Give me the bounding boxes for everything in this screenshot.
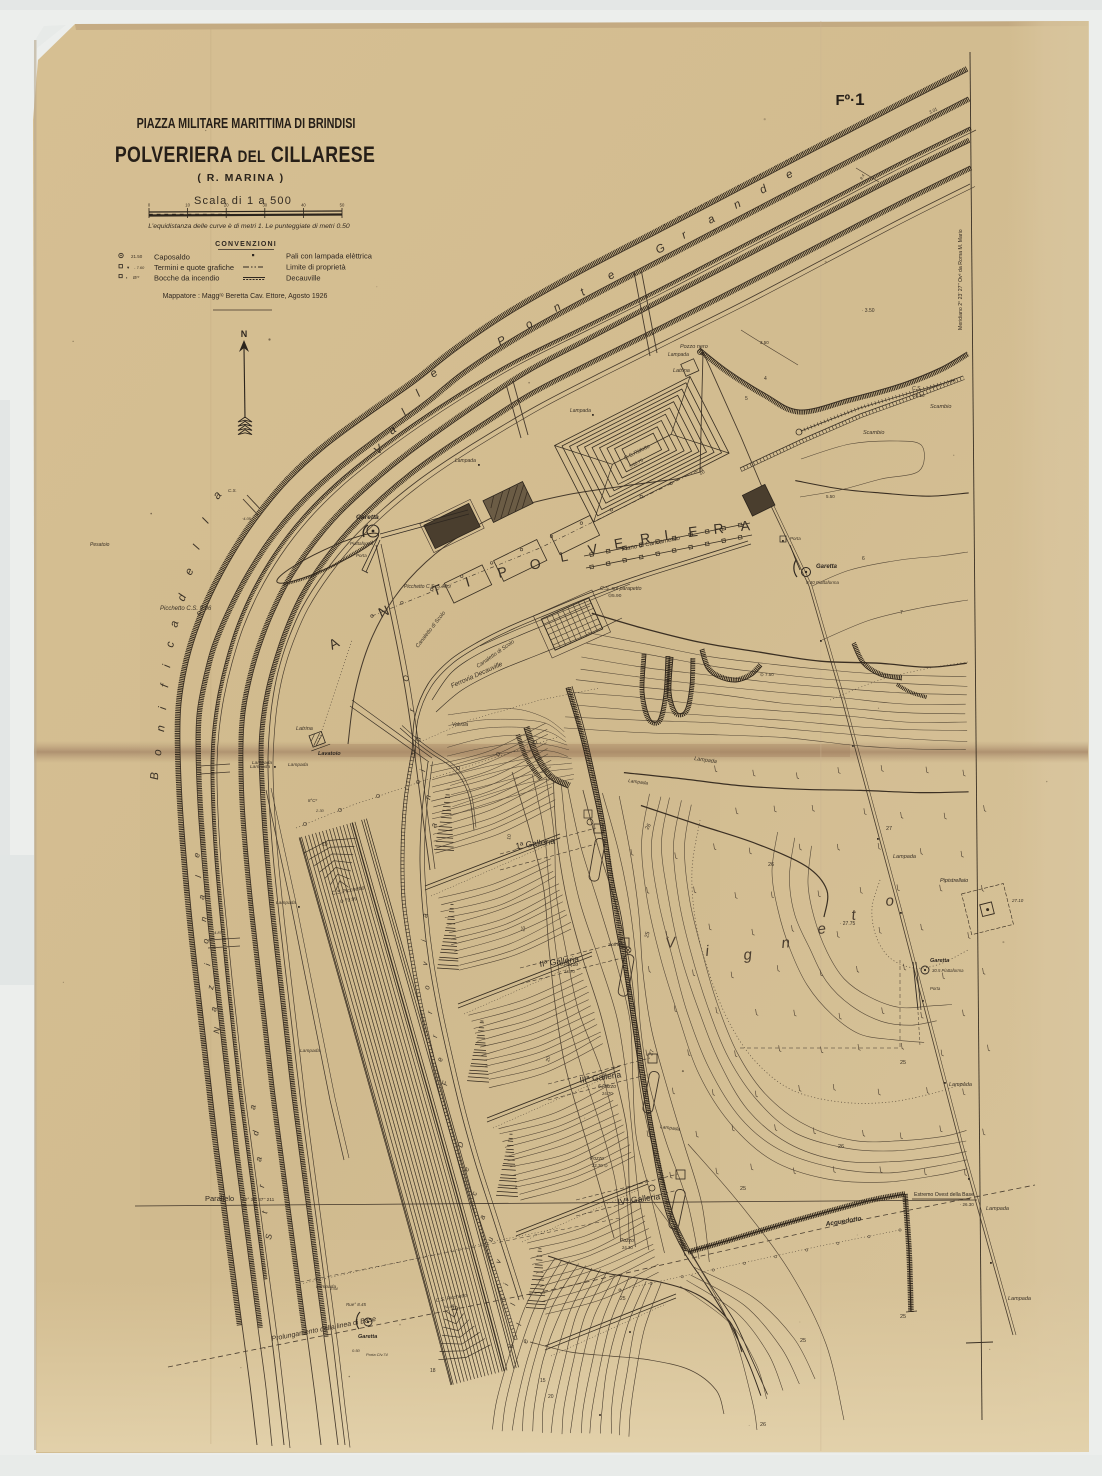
svg-text:( R. MARINA ): ( R. MARINA ) <box>197 172 284 184</box>
svg-text:4: 4 <box>764 376 767 382</box>
svg-text:2.64: 2.64 <box>329 1286 339 1291</box>
svg-text:25: 25 <box>620 1296 626 1302</box>
svg-text:Pozzo: Pozzo <box>620 1238 634 1244</box>
svg-text:Pipistrellaio: Pipistrellaio <box>940 878 968 884</box>
svg-text:24.30: 24.30 <box>622 1245 633 1250</box>
svg-text:15: 15 <box>540 1378 546 1384</box>
svg-text:Estremo Ovest della Base: Estremo Ovest della Base <box>914 1192 974 1198</box>
svg-text:25: 25 <box>900 1060 906 1066</box>
svg-text:20: 20 <box>548 1394 554 1400</box>
svg-text:20: 20 <box>224 203 229 208</box>
svg-text:18: 18 <box>430 1368 436 1374</box>
svg-text:50: 50 <box>340 203 345 208</box>
svg-text:Pozzo: Pozzo <box>590 1156 604 1162</box>
svg-text:Porta: Porta <box>790 536 801 541</box>
svg-text:Piattaforma: Piattaforma <box>350 541 374 546</box>
svg-text:E: E <box>687 523 698 540</box>
svg-text:Bocche da incendio: Bocche da incendio <box>154 274 219 283</box>
svg-text:o: o <box>885 892 895 910</box>
svg-text:POLVERIERA DEL CILLARESE: POLVERIERA DEL CILLARESE <box>115 143 375 167</box>
svg-text:Pozzo nero: Pozzo nero <box>680 344 708 350</box>
svg-text:Mappatore : Maggʳᵉ Beretta Ca: Mappatore : Maggʳᵉ Beretta Cav. Ettore, … <box>163 293 328 300</box>
svg-text:⊙5.90: ⊙5.90 <box>608 593 622 599</box>
svg-text:Porta: Porta <box>356 553 367 558</box>
svg-text:Latrina: Latrina <box>673 368 690 374</box>
svg-text:CONVENZIONI: CONVENZIONI <box>215 241 277 248</box>
svg-text:Garetta: Garetta <box>356 514 379 521</box>
svg-text:Meridiano 2° 23’ 27’’ Ovᵉ da: Meridiano 2° 23’ 27’’ Ovᵉ da Roma M. Mar… <box>958 229 964 330</box>
svg-text:25: 25 <box>900 1314 906 1320</box>
svg-text:Garetta: Garetta <box>930 958 949 964</box>
svg-text:Lavatoio: Lavatoio <box>318 751 341 757</box>
svg-text:10: 10 <box>185 203 190 208</box>
svg-text:B: B <box>149 772 161 780</box>
svg-text:Lampada: Lampada <box>986 1206 1009 1212</box>
svg-text:10: 10 <box>322 842 328 848</box>
svg-text:Garetta: Garetta <box>816 564 838 570</box>
svg-text:C.S.: C.S. <box>912 386 922 392</box>
svg-text:25: 25 <box>740 1186 746 1192</box>
svg-text:Fº·1: Fº·1 <box>835 90 864 109</box>
svg-text:26: 26 <box>768 862 774 868</box>
svg-text:Lampada: Lampada <box>252 760 272 766</box>
svg-text:Bʸᶜ: Bʸᶜ <box>133 275 140 280</box>
svg-text:N: N <box>241 329 248 339</box>
svg-text:Lampada: Lampada <box>1008 1296 1031 1302</box>
svg-text:30.5 Piattaforma: 30.5 Piattaforma <box>932 968 964 973</box>
svg-text:- 7.60: - 7.60 <box>134 265 145 270</box>
svg-text:∙ 26.30: ∙ 26.30 <box>960 1202 974 1207</box>
svg-text:26: 26 <box>760 1422 766 1428</box>
svg-text:5.50: 5.50 <box>826 494 835 499</box>
svg-text:Lampada: Lampada <box>668 352 689 358</box>
svg-text:Scambio: Scambio <box>863 430 884 436</box>
svg-text:5: 5 <box>745 396 748 402</box>
svg-text:Garetta: Garetta <box>358 1334 377 1340</box>
svg-text:27.10: 27.10 <box>1011 898 1024 903</box>
svg-text:Lampada: Lampada <box>276 900 296 906</box>
svg-text:3.50: 3.50 <box>760 340 769 345</box>
svg-text:Pesatoio: Pesatoio <box>90 542 110 548</box>
svg-text:Lampada: Lampada <box>570 408 591 414</box>
svg-text:Sofnetti: Sofnetti <box>608 942 625 948</box>
svg-text:Termini e quote grafiche: Termini e quote grafiche <box>154 263 234 272</box>
svg-text:Rue° 8.45: Rue° 8.45 <box>346 1302 367 1307</box>
svg-text:C.S.: C.S. <box>228 488 237 493</box>
svg-text:0.50: 0.50 <box>352 1348 361 1353</box>
svg-text:8°Cᶜ: 8°Cᶜ <box>308 798 318 803</box>
svg-text:Valvola: Valvola <box>452 722 468 728</box>
svg-text:Lampada: Lampada <box>288 762 308 768</box>
svg-text:6: 6 <box>862 556 865 562</box>
svg-text:Limite di proprietà: Limite di proprietà <box>286 263 346 272</box>
svg-text:20: 20 <box>508 1344 514 1350</box>
svg-text:27: 27 <box>886 826 892 832</box>
svg-text:40: 40 <box>301 203 306 208</box>
svg-text:Decauville: Decauville <box>286 274 321 283</box>
svg-text:25: 25 <box>800 1338 806 1344</box>
svg-text:22.30 ⊙: 22.30 ⊙ <box>592 1163 608 1168</box>
svg-text:⊙ 7.50: ⊙ 7.50 <box>760 672 774 677</box>
svg-text:Scambio: Scambio <box>930 404 951 410</box>
svg-text:4.87: 4.87 <box>214 930 223 935</box>
svg-text:Scala di 1 a 500: Scala di 1 a 500 <box>194 195 292 207</box>
svg-text:24.70: 24.70 <box>602 1091 613 1096</box>
svg-text:24.70: 24.70 <box>564 969 575 974</box>
svg-text:Pali con lampada elèttrica: Pali con lampada elèttrica <box>286 252 373 261</box>
svg-text:2.30: 2.30 <box>315 808 325 813</box>
svg-text:26: 26 <box>838 1144 844 1150</box>
svg-text:Porta Clv.74: Porta Clv.74 <box>366 1352 388 1357</box>
svg-text:6.Pozzo: 6.Pozzo <box>598 1084 616 1090</box>
svg-text:e: e <box>817 920 827 938</box>
svg-text:6.Pozzo: 6.Pozzo <box>560 962 578 968</box>
svg-text:30: 30 <box>262 203 267 208</box>
svg-text:Lampada: Lampada <box>300 1048 320 1054</box>
svg-text:∙ 3.50: ∙ 3.50 <box>862 308 875 314</box>
svg-text:Lampada: Lampada <box>455 458 476 464</box>
svg-text:Picchetto C.S. 9.06: Picchetto C.S. 9.06 <box>160 606 212 612</box>
svg-text:Latrina: Latrina <box>296 726 313 732</box>
svg-text:Lampada: Lampada <box>893 854 916 860</box>
svg-text:∙4.05: ∙4.05 <box>242 516 252 521</box>
svg-text:Porta: Porta <box>930 986 941 991</box>
svg-text:n: n <box>155 725 168 733</box>
svg-text:PIAZZA MILITARE MARITTIMA DI B: PIAZZA MILITARE MARITTIMA DI BRINDISI <box>137 114 356 131</box>
svg-text:L’equidistanza delle curve è d: L’equidistanza delle curve è di metri 1.… <box>148 223 350 230</box>
svg-text:21.50: 21.50 <box>131 254 143 259</box>
svg-text:n: n <box>781 934 791 952</box>
svg-text:Picchetto C.S. 5.46⊙: Picchetto C.S. 5.46⊙ <box>404 584 452 590</box>
svg-text:7: 7 <box>900 610 903 616</box>
svg-text:⊙2.50: ⊙2.50 <box>912 393 925 398</box>
svg-text:Caposaldo: Caposaldo <box>154 253 190 262</box>
